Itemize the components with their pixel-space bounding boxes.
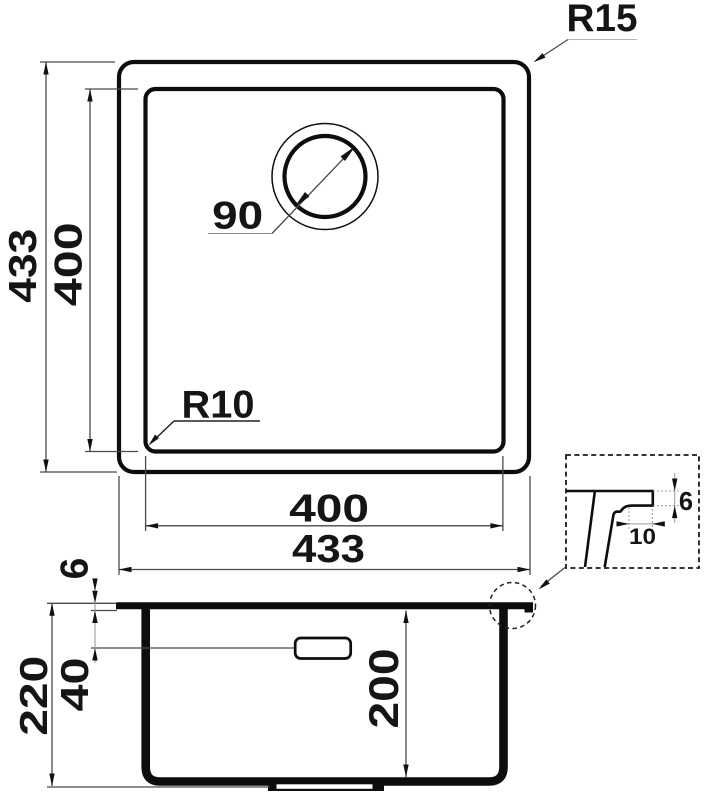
svg-text:10: 10 bbox=[629, 524, 656, 549]
svg-text:400: 400 bbox=[47, 222, 90, 306]
svg-text:6: 6 bbox=[53, 558, 96, 580]
svg-text:6: 6 bbox=[679, 488, 693, 516]
svg-text:400: 400 bbox=[289, 488, 369, 531]
svg-text:220: 220 bbox=[13, 656, 56, 736]
svg-text:R15: R15 bbox=[567, 0, 638, 40]
svg-text:R10: R10 bbox=[182, 383, 255, 426]
svg-text:200: 200 bbox=[360, 649, 407, 729]
svg-text:433: 433 bbox=[292, 528, 365, 571]
svg-text:40: 40 bbox=[54, 658, 97, 712]
svg-text:90: 90 bbox=[212, 194, 263, 237]
svg-text:433: 433 bbox=[2, 229, 45, 303]
